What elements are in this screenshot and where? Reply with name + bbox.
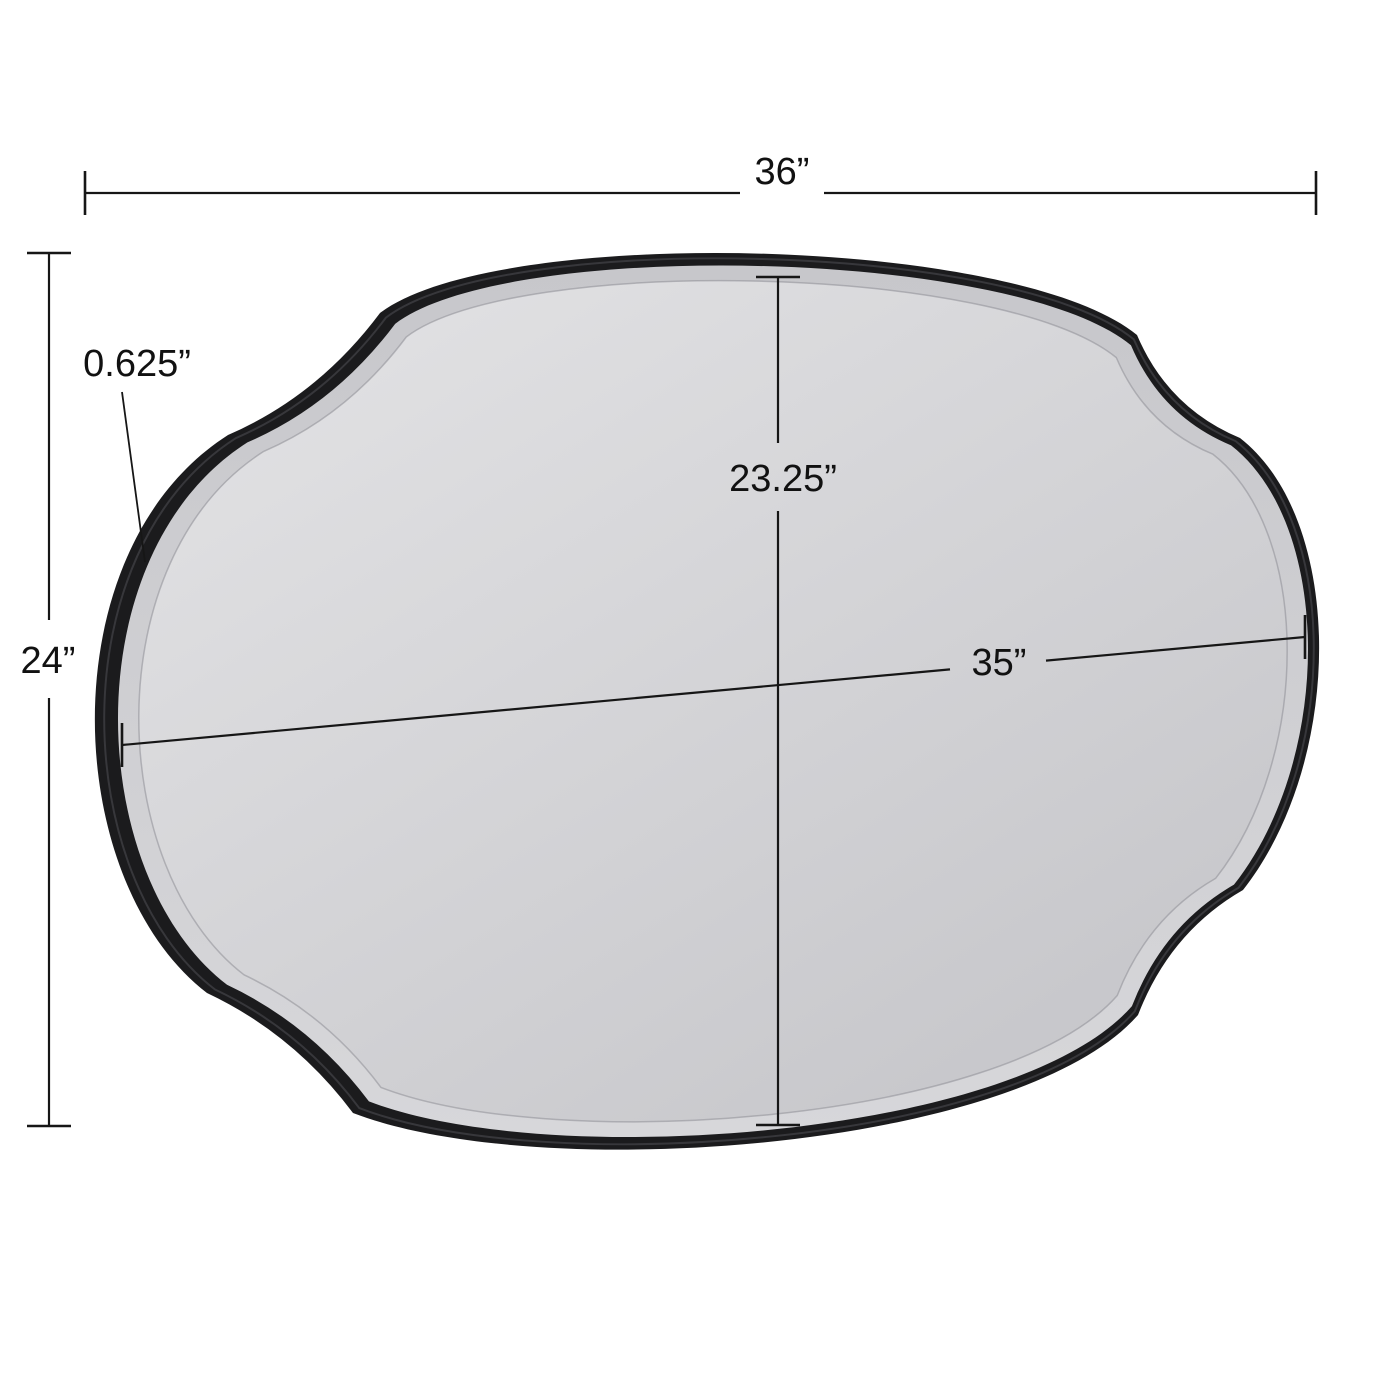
label-glass-width: 35” [972, 642, 1027, 684]
label-overall-height: 24” [21, 640, 76, 682]
dim-frame-depth-leader [122, 392, 145, 562]
dim-overall-width [85, 171, 1316, 215]
leader-line [122, 392, 145, 562]
dimension-diagram-canvas: 36” 24” 0.625” 23.25” 35” [0, 0, 1400, 1400]
mirror-illustration [95, 253, 1319, 1150]
label-frame-depth: 0.625” [83, 343, 191, 385]
dim-overall-height [27, 253, 71, 1126]
label-glass-height: 23.25” [729, 458, 837, 500]
label-overall-width: 36” [755, 151, 810, 193]
mirror-dimension-diagram: 36” 24” 0.625” 23.25” 35” [0, 0, 1400, 1400]
